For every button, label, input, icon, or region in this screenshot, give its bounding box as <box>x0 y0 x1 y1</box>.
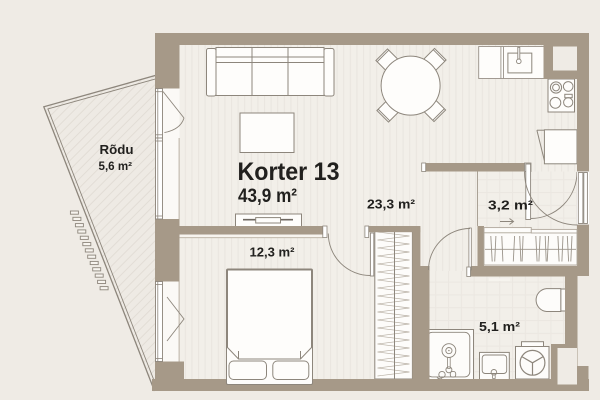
svg-text:12,3 m²: 12,3 m² <box>250 245 296 260</box>
svg-text:3,2 m²: 3,2 m² <box>488 198 534 213</box>
svg-text:Rõdu: Rõdu <box>100 142 134 157</box>
svg-text:43,9 m²: 43,9 m² <box>238 185 297 207</box>
svg-text:Korter 13: Korter 13 <box>238 158 340 186</box>
svg-text:23,3 m²: 23,3 m² <box>367 197 416 212</box>
svg-text:5,1 m²: 5,1 m² <box>479 319 521 334</box>
svg-text:5,6 m²: 5,6 m² <box>99 161 133 173</box>
